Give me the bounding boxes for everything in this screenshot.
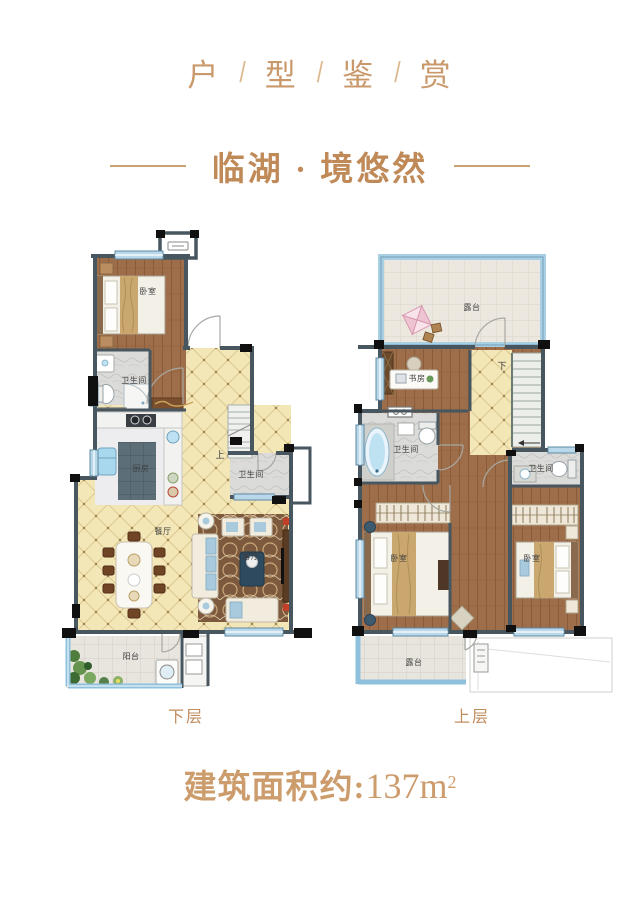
laptop-icon [396,374,406,383]
nightstand [100,336,113,347]
upper-floor-plan: 露台 书房 下 卫生间 卫生间 卧室 卧室 露台 [352,257,612,692]
room-label-balcony: 阳台 [123,651,140,661]
room-label-bedroom-left: 卧室 [391,553,408,563]
sink-icon [398,423,414,435]
room-label-bedroom: 卧室 [140,286,157,296]
living-set [192,513,291,622]
fridge-icon [98,448,116,475]
room-label-living: 客厅 [243,551,260,561]
area-value: 137m [365,766,447,806]
room-label-terrace-bottom: 露台 [406,657,423,667]
room-label-bedroom-right: 卧室 [524,553,541,563]
room-label-bath-right: 卫生间 [528,463,554,473]
lower-hall-floor [186,348,252,408]
lower-stairs [228,405,252,458]
lower-bed [97,263,165,347]
wall-lamp-icon [283,518,290,525]
area-superscript: 2 [448,772,457,792]
wardrobe-left [376,503,450,523]
room-label-study: 书房 [409,373,426,383]
room-label-dining: 餐厅 [155,527,172,536]
nightstand [566,526,578,539]
stairs-down-label: 下 [497,361,506,371]
ac-unit-icon [474,644,488,672]
roof-outline [470,638,612,692]
upper-floor-caption: 上层 [426,703,518,727]
wardrobe-right [512,505,578,525]
kitchen-sink-icon [167,431,179,443]
lower-floor-plan: 卧室 卫生间 厨房 餐厅 客厅 卫生间 阳台 上 [62,230,312,688]
nightstand [566,600,578,613]
toilet-icon [419,428,435,444]
room-label-bath-upper: 卫生间 [121,375,147,385]
room-label-terrace-top: 露台 [464,302,481,312]
tv-icon [281,548,284,584]
building-area: 建筑面积约:137m2 [0,760,640,808]
desk-chair [407,357,421,371]
upper-bed-left [364,522,451,626]
room-label-bath-left: 卫生间 [393,444,419,454]
room-label-kitchen: 厨房 [133,463,150,473]
stairs-up-label: 上 [215,450,224,460]
upper-terrace-top-floor [382,258,542,344]
water-heater-icon [186,644,202,656]
nightstand [100,263,113,274]
area-label: 建筑面积约: [183,770,365,806]
lower-floor-caption: 下层 [140,703,232,727]
upper-stairs [512,353,543,447]
room-label-bath-mid: 卫生间 [238,469,264,479]
stove-icon [126,414,156,427]
wall-lamp-icon [283,604,290,611]
